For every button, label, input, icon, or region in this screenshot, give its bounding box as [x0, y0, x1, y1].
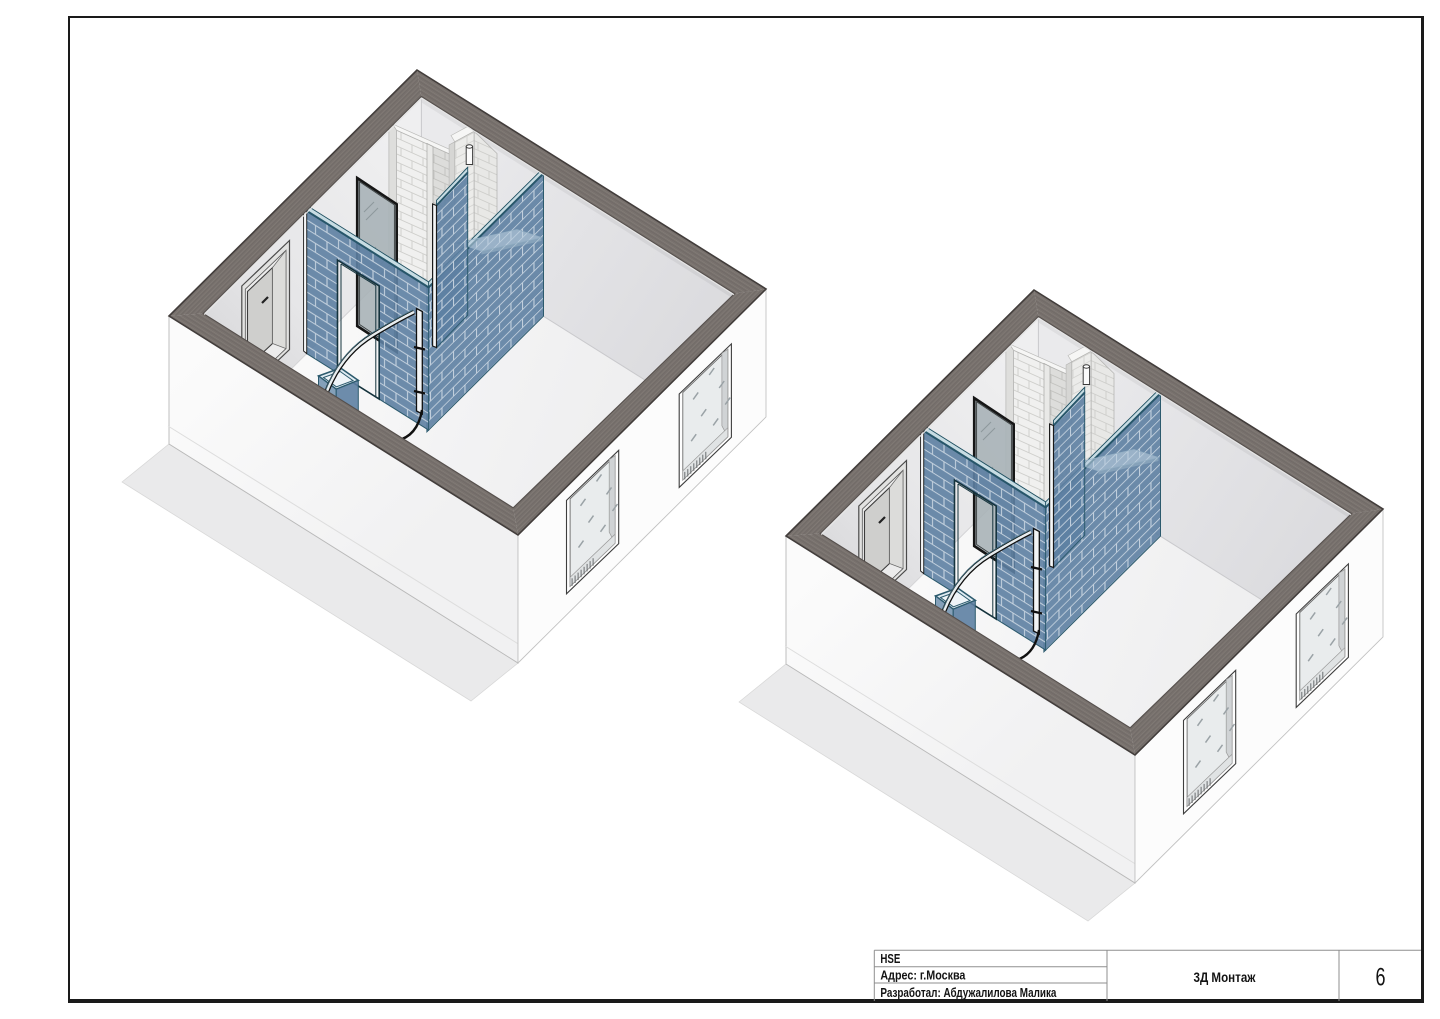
svg-text:3Д Монтаж: 3Д Монтаж — [1194, 970, 1256, 985]
svg-text:Разработал: Абдужалилова Малик: Разработал: Абдужалилова Малика — [880, 985, 1057, 1000]
svg-text:Адрес: г.Москва: Адрес: г.Москва — [880, 967, 966, 982]
svg-text:6: 6 — [1376, 964, 1386, 992]
svg-text:HSE: HSE — [880, 951, 900, 966]
